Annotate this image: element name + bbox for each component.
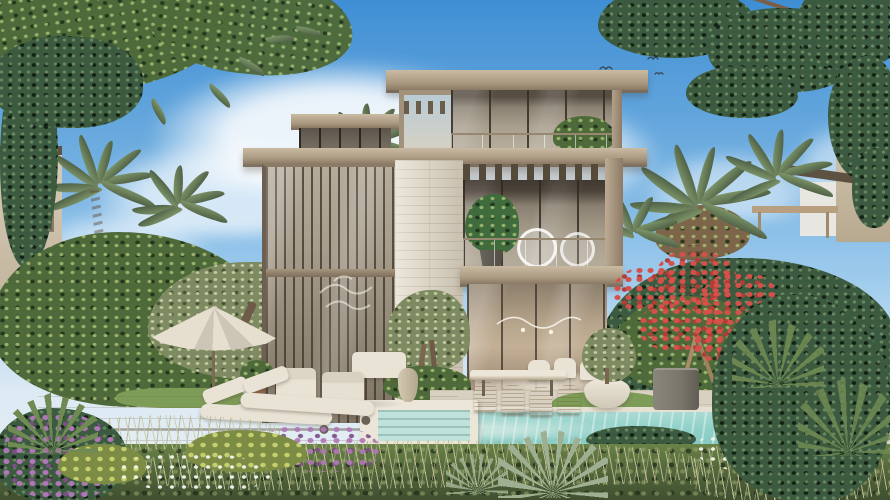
pine-branch — [686, 66, 798, 118]
pine-branch — [852, 148, 890, 228]
dining-chair-wicker — [474, 382, 496, 411]
lounger-wheel — [361, 416, 371, 426]
dining-chair-wicker — [502, 385, 524, 414]
dining-chair-wicker — [530, 387, 552, 416]
lounger-seat — [240, 392, 375, 416]
white-flowers — [118, 452, 270, 492]
overhanging-leaves — [0, 36, 143, 128]
pool-steps — [378, 410, 470, 441]
dining-chair-wicker — [558, 385, 580, 414]
dining-table — [470, 370, 566, 380]
scene — [0, 0, 890, 500]
cloud — [420, 100, 660, 195]
neighbor-pergola-post — [826, 212, 829, 238]
decor-jar — [398, 368, 418, 402]
planter-olive-trunk — [605, 368, 609, 384]
planter-olive-tree — [582, 328, 636, 382]
garden-pillar — [653, 368, 699, 410]
